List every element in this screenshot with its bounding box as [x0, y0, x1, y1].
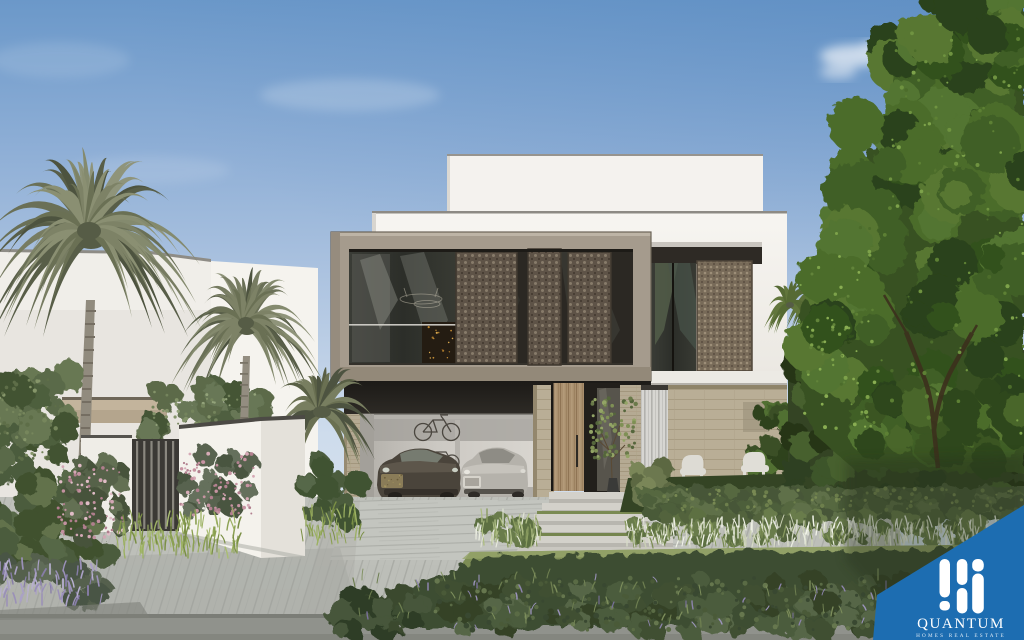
- svg-text:QUANTUM: QUANTUM: [917, 616, 1005, 632]
- svg-text:HOMES REAL ESTATE: HOMES REAL ESTATE: [916, 633, 1006, 639]
